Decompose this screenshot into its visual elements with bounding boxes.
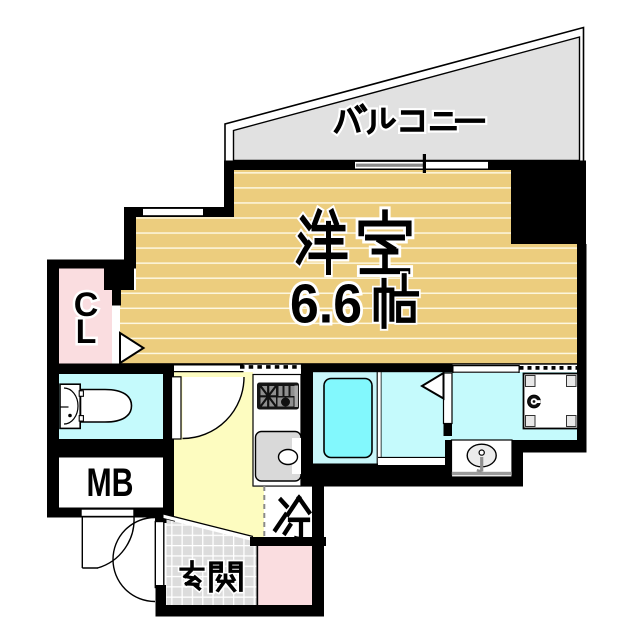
svg-text:6.6: 6.6 [290,273,362,335]
svg-text:L: L [76,313,97,351]
svg-text:MB: MB [87,461,134,505]
